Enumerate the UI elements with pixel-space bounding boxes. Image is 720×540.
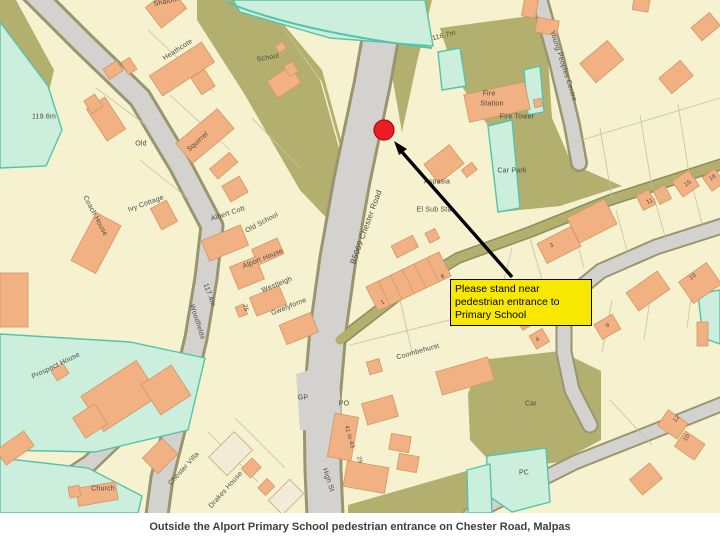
pointer-arrow bbox=[402, 152, 512, 277]
instruction-text: Please stand near pedestrian entrance to… bbox=[455, 283, 560, 321]
caption: Outside the Alport Primary School pedest… bbox=[149, 521, 570, 533]
annotation-layer bbox=[0, 0, 720, 513]
map-figure: ShalomHeathcote119.6mOldSquirrelSchool11… bbox=[0, 0, 720, 540]
instruction-callout: Please stand near pedestrian entrance to… bbox=[450, 279, 592, 326]
map-canvas: ShalomHeathcote119.6mOldSquirrelSchool11… bbox=[0, 0, 720, 513]
caption-bar: Outside the Alport Primary School pedest… bbox=[0, 513, 720, 540]
location-marker bbox=[374, 120, 394, 140]
